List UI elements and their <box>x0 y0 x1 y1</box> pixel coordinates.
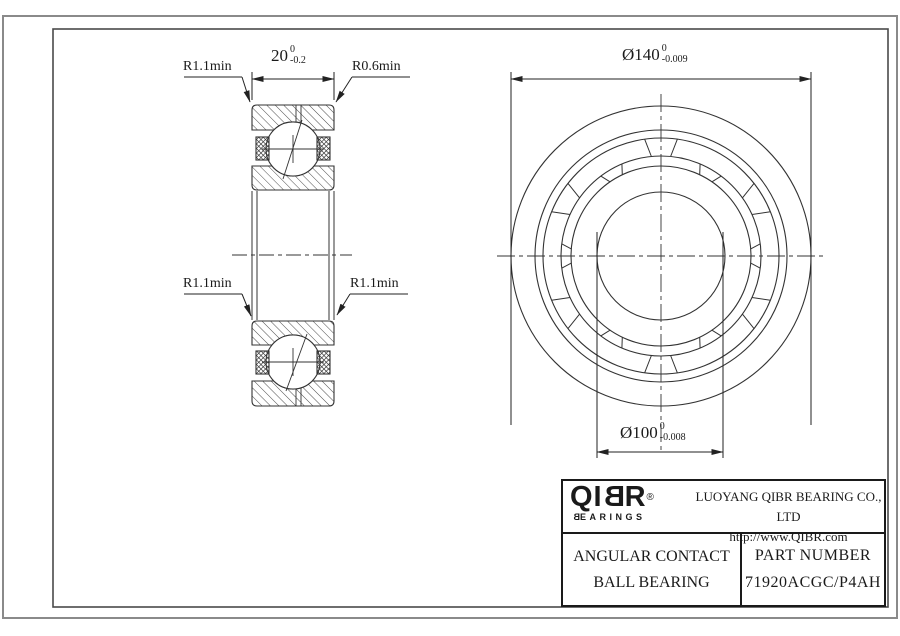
lower-cage-right <box>317 351 330 374</box>
fillet-label-top-left: R1.1min <box>183 60 232 74</box>
company-name: LUOYANG QIBR BEARING CO., LTD <box>693 487 884 527</box>
od-value: Ø140 <box>622 46 660 63</box>
upper-cage-right <box>317 137 330 160</box>
title-block-detail-row: ANGULAR CONTACT BALL BEARING PART NUMBER… <box>563 534 884 605</box>
fillet-label-top-right: R0.6min <box>352 60 401 74</box>
product-description: ANGULAR CONTACT BALL BEARING <box>563 534 742 605</box>
od-tol-upper: 0 <box>662 44 688 55</box>
width-dimension: 20 0 -0.2 <box>271 47 306 66</box>
leader-top-right <box>336 77 352 102</box>
logo-wordmark: QIBR <box>570 481 647 513</box>
product-line2: BALL BEARING <box>563 574 740 592</box>
od-tol-lower: -0.009 <box>662 55 688 66</box>
part-number-cell: PART NUMBER 71920ACGC/P4AH <box>742 534 884 605</box>
front-view <box>497 94 827 450</box>
title-block: QIBR® BEARINGS LUOYANG QIBR BEARING CO.,… <box>561 479 886 607</box>
fillet-label-mid-left: R1.1min <box>183 277 232 291</box>
title-block-header-row: QIBR® BEARINGS LUOYANG QIBR BEARING CO.,… <box>563 481 884 534</box>
engineering-drawing-page: R1.1min R0.6min R1.1min R1.1min 20 0 -0.… <box>0 0 900 636</box>
upper-cage-left <box>256 137 269 160</box>
product-line1: ANGULAR CONTACT <box>563 548 740 566</box>
leader-top-left <box>242 77 250 102</box>
bore-value: Ø100 <box>620 424 658 441</box>
section-view <box>232 105 352 406</box>
part-number-label: PART NUMBER <box>742 547 884 565</box>
registered-mark: ® <box>647 492 654 503</box>
logo-subtitle: BEARINGS <box>570 512 693 522</box>
company-info: LUOYANG QIBR BEARING CO., LTD http://www… <box>693 481 884 532</box>
company-logo: QIBR® BEARINGS <box>563 481 693 532</box>
bore-diameter-dimension: Ø100 0 -0.008 <box>620 424 686 443</box>
leader-mid-right <box>337 294 350 315</box>
width-tol-lower: -0.2 <box>290 56 306 67</box>
width-value: 20 <box>271 47 288 64</box>
bore-tol-upper: 0 <box>660 422 686 433</box>
part-number-value: 71920ACGC/P4AH <box>742 574 884 592</box>
leader-mid-left <box>242 294 251 316</box>
outer-diameter-dimension: Ø140 0 -0.009 <box>622 46 688 65</box>
lower-cage-left <box>256 351 269 374</box>
width-tol-upper: 0 <box>290 45 306 56</box>
bore-tol-lower: -0.008 <box>660 433 686 444</box>
bore-lines <box>252 191 334 320</box>
fillet-label-mid-right: R1.1min <box>350 277 399 291</box>
